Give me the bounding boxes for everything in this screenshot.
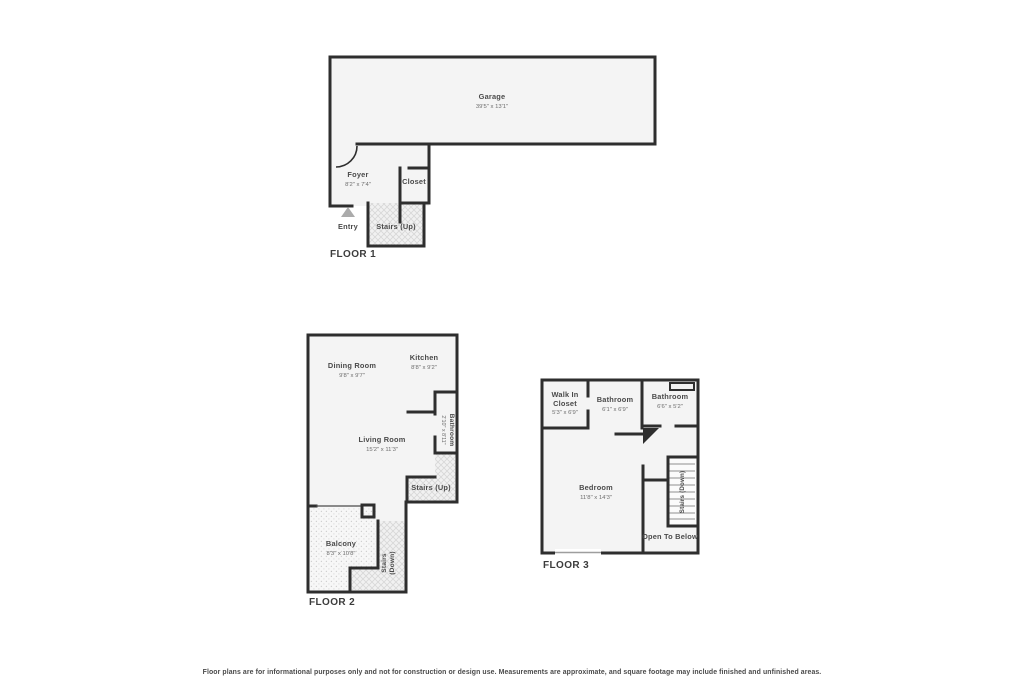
floor2-stairs-down-labels: Stairs (Down) bbox=[381, 551, 396, 575]
floor2-stairs-up-label: Stairs (Up) bbox=[411, 483, 451, 492]
floor3-bathroom1-label: Bathroom bbox=[597, 395, 634, 404]
dining-room-label: Dining Room bbox=[328, 361, 376, 370]
floor3-bathroom1-dims: 6'1" x 6'9" bbox=[602, 407, 628, 413]
living-room-label: Living Room bbox=[359, 435, 406, 444]
disclaimer-text: Floor plans are for informational purpos… bbox=[203, 669, 822, 676]
floor2-stairs-down-label-1: Stairs bbox=[381, 553, 388, 573]
foyer-dims: 8'2" x 7'4" bbox=[345, 182, 371, 188]
entry-arrow-icon bbox=[341, 207, 355, 217]
foyer-room-area bbox=[330, 144, 429, 206]
bedroom-dims: 11'8" x 14'3" bbox=[580, 495, 612, 501]
closet-label: Closet bbox=[402, 177, 426, 186]
balcony-dims: 8'3" x 10'8" bbox=[326, 551, 355, 557]
floor3-title: FLOOR 3 bbox=[543, 560, 589, 571]
floor2-bathroom-dims: 2'10" x 8'11" bbox=[440, 415, 446, 444]
walk-in-closet-label-1: Walk In bbox=[552, 390, 579, 399]
garage-label: Garage bbox=[479, 92, 506, 101]
floor2-title: FLOOR 2 bbox=[309, 597, 355, 608]
floor3-bathroom2-label: Bathroom bbox=[652, 392, 689, 401]
floor-2-plan: Dining Room 9'8" x 9'7" Kitchen 8'8" x 9… bbox=[308, 335, 457, 608]
kitchen-dims: 8'8" x 9'2" bbox=[411, 365, 437, 371]
floor-1-plan: Garage 39'5" x 13'1" Foyer 8'2" x 7'4" C… bbox=[330, 57, 655, 260]
balcony-label: Balcony bbox=[326, 539, 357, 548]
kitchen-label: Kitchen bbox=[410, 353, 439, 362]
dining-room-dims: 9'8" x 9'7" bbox=[339, 373, 365, 379]
walk-in-closet-label-2: Closet bbox=[553, 399, 577, 408]
bedroom-label: Bedroom bbox=[579, 483, 613, 492]
floor-plan-canvas: Garage 39'5" x 13'1" Foyer 8'2" x 7'4" C… bbox=[0, 0, 1024, 683]
floor3-niche bbox=[670, 383, 694, 390]
floor-plan-page: Garage 39'5" x 13'1" Foyer 8'2" x 7'4" C… bbox=[0, 0, 1024, 683]
walk-in-closet-dims: 5'3" x 6'9" bbox=[552, 410, 578, 416]
floor-3-plan: Walk In Closet 5'3" x 6'9" Bathroom 6'1"… bbox=[542, 380, 698, 571]
garage-dims: 39'5" x 13'1" bbox=[476, 104, 508, 110]
floor2-stairs-down-label-2: (Down) bbox=[389, 551, 396, 575]
open-to-below-label: Open To Below bbox=[642, 532, 698, 541]
entry-label: Entry bbox=[338, 222, 359, 231]
floor3-stairs-down-label: Stairs (Down) bbox=[679, 471, 686, 513]
floor1-stairs-label: Stairs (Up) bbox=[376, 222, 416, 231]
living-room-dims: 15'2" x 11'3" bbox=[366, 447, 398, 453]
floor3-stairs-down-labels: Stairs (Down) bbox=[679, 471, 686, 513]
floor2-bathroom-label: Bathroom bbox=[448, 414, 455, 447]
foyer-label: Foyer bbox=[347, 170, 368, 179]
floor1-title: FLOOR 1 bbox=[330, 249, 376, 260]
floor3-bathroom2-dims: 6'6" x 5'2" bbox=[657, 404, 683, 410]
